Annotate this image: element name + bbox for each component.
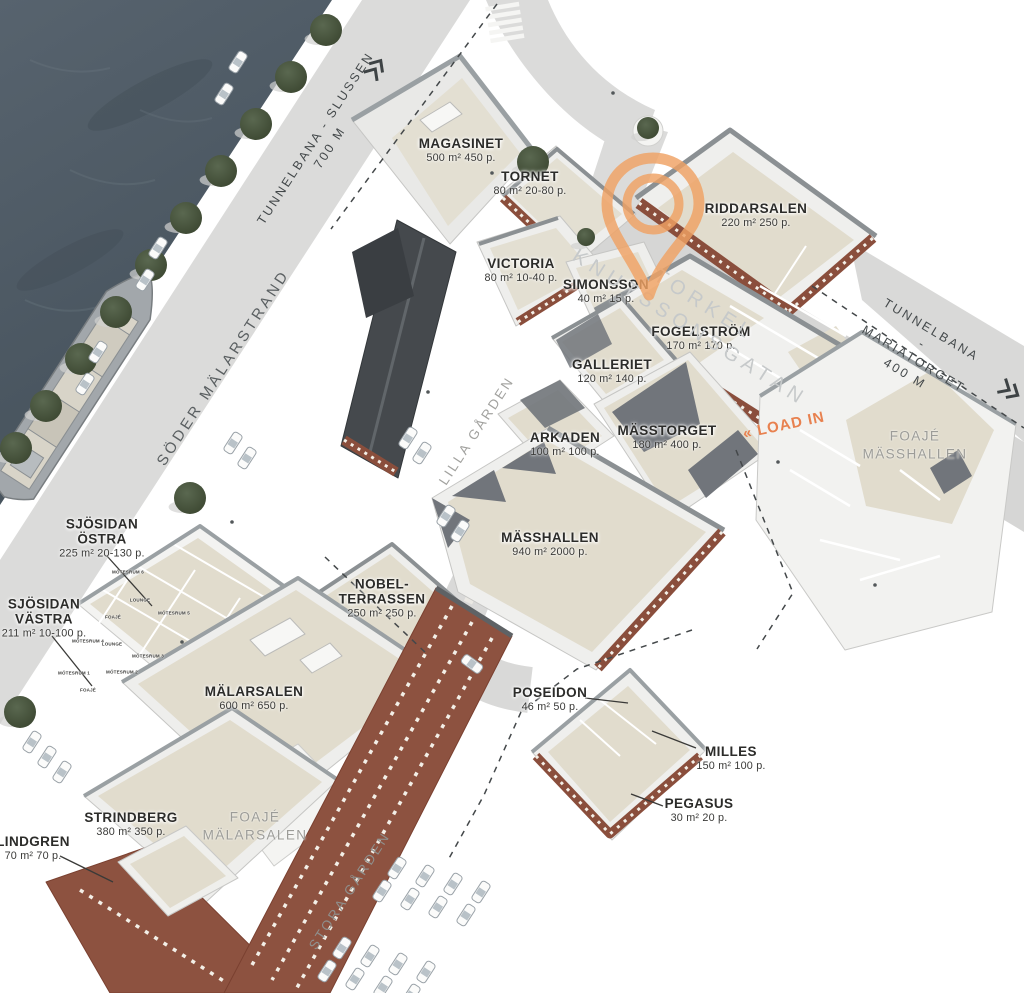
- tree-icon: [240, 108, 272, 140]
- venue-map: MAGASINET500 m² 450 p.TORNET80 m² 20-80 …: [0, 0, 1024, 993]
- tree-icon: [4, 696, 36, 728]
- tree-icon: [637, 117, 659, 139]
- tree-icon: [275, 61, 307, 93]
- tree-icon: [170, 202, 202, 234]
- tree-icon: [517, 146, 549, 178]
- tree-icon: [30, 390, 62, 422]
- tree-icon: [100, 296, 132, 328]
- map-base: [0, 0, 1024, 993]
- tree-icon: [174, 482, 206, 514]
- tree-icon: [205, 155, 237, 187]
- tree-icon: [310, 14, 342, 46]
- tree-icon: [0, 432, 32, 464]
- tree-icon: [577, 228, 595, 246]
